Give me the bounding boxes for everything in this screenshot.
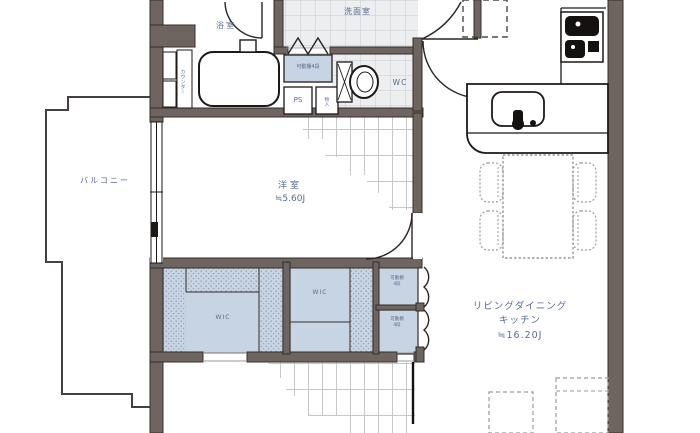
floor-plan: バルコニー 浴室 洗面室 カウンター 可動棚4段 PS 物入 WC 洋室 ≒5.… bbox=[0, 0, 700, 433]
ldk-label-line2: キッチン bbox=[450, 314, 590, 328]
stove bbox=[561, 12, 603, 62]
bathtub bbox=[199, 40, 279, 106]
ps-label: PS bbox=[284, 96, 312, 105]
shelf-upper-label-line2: 4段 bbox=[377, 282, 417, 288]
washroom-label: 洗面室 bbox=[320, 7, 395, 17]
ldk-area: ≒16.20J bbox=[450, 329, 590, 343]
chair bbox=[480, 163, 503, 202]
door-arc-bathroom bbox=[225, 2, 262, 38]
western-room-label: 洋室 bbox=[250, 181, 330, 193]
toilet bbox=[337, 62, 378, 102]
balcony-label: バルコニー bbox=[60, 176, 150, 186]
wic-left bbox=[163, 266, 283, 353]
wic-right-label: WIC bbox=[295, 289, 345, 297]
shelf-upper-label: 可動棚 4段 bbox=[377, 276, 417, 289]
dining-table bbox=[503, 155, 573, 258]
ldk-label: リビングダイニング キッチン ≒16.20J bbox=[450, 300, 590, 343]
wc-label: WC bbox=[384, 78, 416, 88]
chair bbox=[573, 163, 596, 202]
floor-plan-drawing bbox=[0, 0, 700, 433]
bifold-door-upper bbox=[424, 267, 429, 307]
storage-label: 物入 bbox=[323, 91, 329, 111]
wic-left-label: WIC bbox=[198, 314, 248, 322]
chair bbox=[480, 211, 503, 250]
shelf-lower-label: 可動棚 4段 bbox=[377, 317, 417, 330]
window-balcony bbox=[150, 122, 163, 263]
bathroom-label: 浴室 bbox=[196, 21, 256, 31]
bath-counter bbox=[163, 50, 192, 108]
refrigerator-space bbox=[463, 0, 507, 37]
shelf-top-label: 可動棚4段 bbox=[285, 64, 331, 71]
ldk-label-line1: リビングダイニング bbox=[450, 300, 590, 314]
door-arc-bedroom bbox=[366, 213, 422, 259]
balcony-outline bbox=[46, 97, 150, 407]
furniture-outline bbox=[556, 378, 608, 433]
bifold-door-lower bbox=[424, 310, 429, 350]
shelf-lower-label-line2: 4段 bbox=[377, 323, 417, 329]
counter-label: カウンター bbox=[179, 56, 186, 106]
furniture-outline bbox=[489, 392, 533, 433]
chair bbox=[573, 211, 596, 250]
flooring-pattern-bottom-room bbox=[255, 362, 415, 433]
western-room-area: ≒5.60J bbox=[250, 194, 330, 206]
wic-right bbox=[290, 263, 373, 353]
